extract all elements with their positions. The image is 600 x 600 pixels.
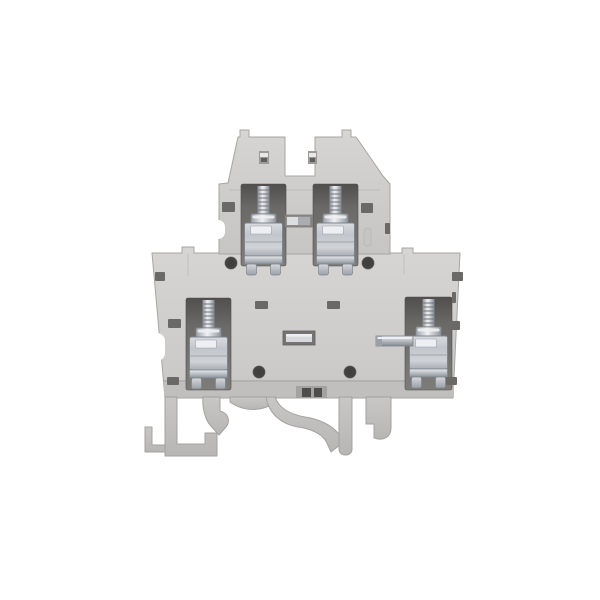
mold-slot (446, 377, 457, 385)
foot-right-leg (339, 397, 352, 455)
mold-slot (222, 202, 235, 212)
mold-slot (155, 272, 165, 281)
foot-left-hook (203, 397, 229, 435)
mold-slot (449, 321, 460, 330)
side-notch-lower (149, 333, 165, 361)
mold-slot (452, 272, 463, 281)
terminal-block-illustration (0, 0, 600, 600)
jumper-slot-lower (283, 331, 315, 345)
side-notch-upper (211, 220, 225, 239)
latch-slit (308, 151, 317, 164)
center-tab-slot (314, 388, 322, 397)
cross-connect-bar (376, 336, 413, 346)
latch-slit-highlight (260, 153, 268, 157)
latch-slit-shadow (310, 158, 315, 162)
tower-latch-slits (259, 151, 317, 164)
latch-slit-shadow (261, 158, 267, 162)
test-hole (253, 366, 266, 379)
test-hole (362, 257, 375, 270)
jumper-contact (287, 217, 298, 225)
mold-slot (361, 203, 373, 213)
mold-slot (167, 377, 179, 385)
din-rail-foot (145, 397, 391, 456)
jumper-contact (298, 217, 310, 225)
mold-slot (168, 319, 181, 328)
jumper-slot-upper (285, 215, 312, 227)
mold-groove (364, 228, 371, 246)
mold-slot (255, 301, 268, 309)
foot-spring-latch (266, 397, 345, 452)
mold-slot (385, 223, 390, 234)
latch-slit (259, 151, 269, 164)
bar-highlight (378, 337, 412, 339)
terminal-block (145, 130, 463, 456)
product-photo (0, 0, 600, 600)
test-hole (225, 257, 238, 270)
foot-left-bracket (145, 427, 165, 452)
center-tab-slot (302, 388, 311, 397)
jumper-contact-highlight (286, 334, 312, 337)
mold-slot (452, 292, 456, 303)
mold-slot (327, 301, 340, 309)
din-rail-center-tab (296, 386, 327, 398)
latch-slit-highlight (309, 153, 316, 157)
foot-right-hook (366, 397, 391, 439)
test-hole (344, 366, 357, 379)
